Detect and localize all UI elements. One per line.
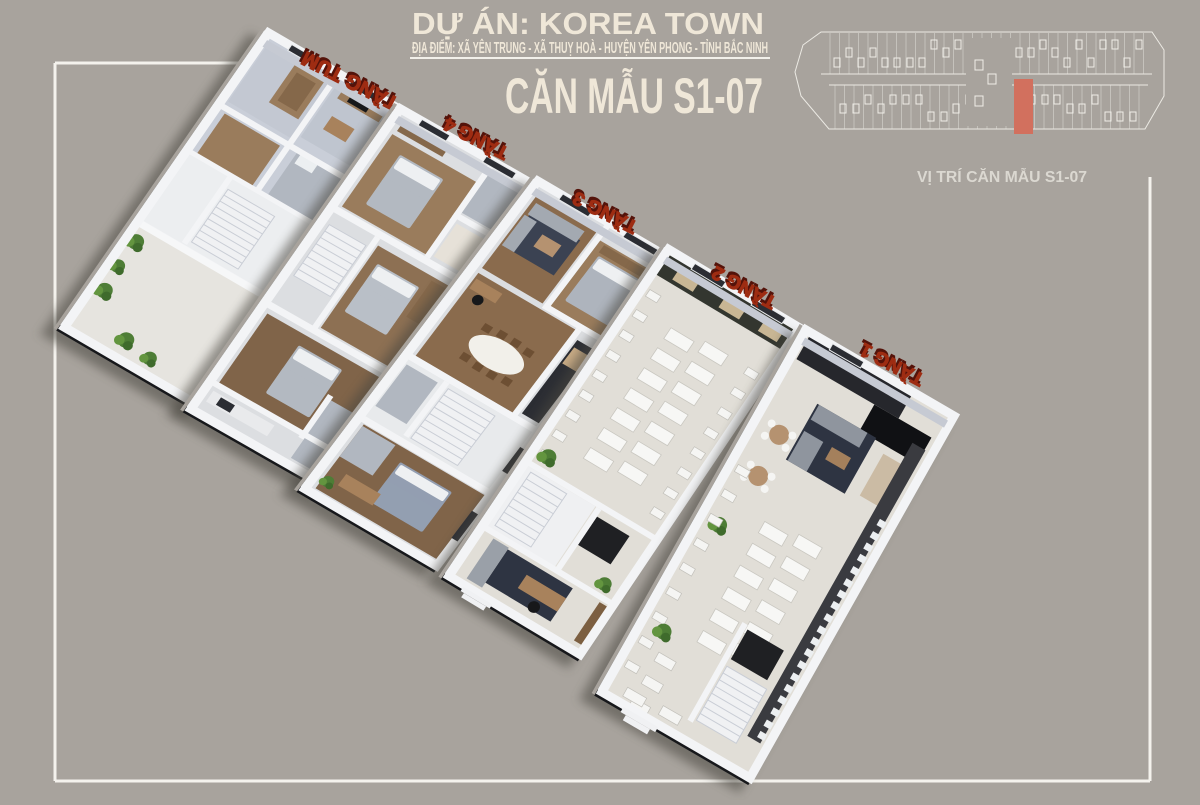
svg-text:VỊ TRÍ CĂN MẪU S1-07: VỊ TRÍ CĂN MẪU S1-07	[917, 167, 1087, 186]
svg-text:CĂN MẪU S1-07: CĂN MẪU S1-07	[505, 68, 763, 124]
svg-text:DỰ ÁN: KOREA TOWN: DỰ ÁN: KOREA TOWN	[412, 6, 764, 41]
svg-text:ĐỊA ĐIỂM: XÃ YÊN TRUNG - XÃ TH: ĐỊA ĐIỂM: XÃ YÊN TRUNG - XÃ THUỴ HOÀ - H…	[412, 37, 768, 57]
